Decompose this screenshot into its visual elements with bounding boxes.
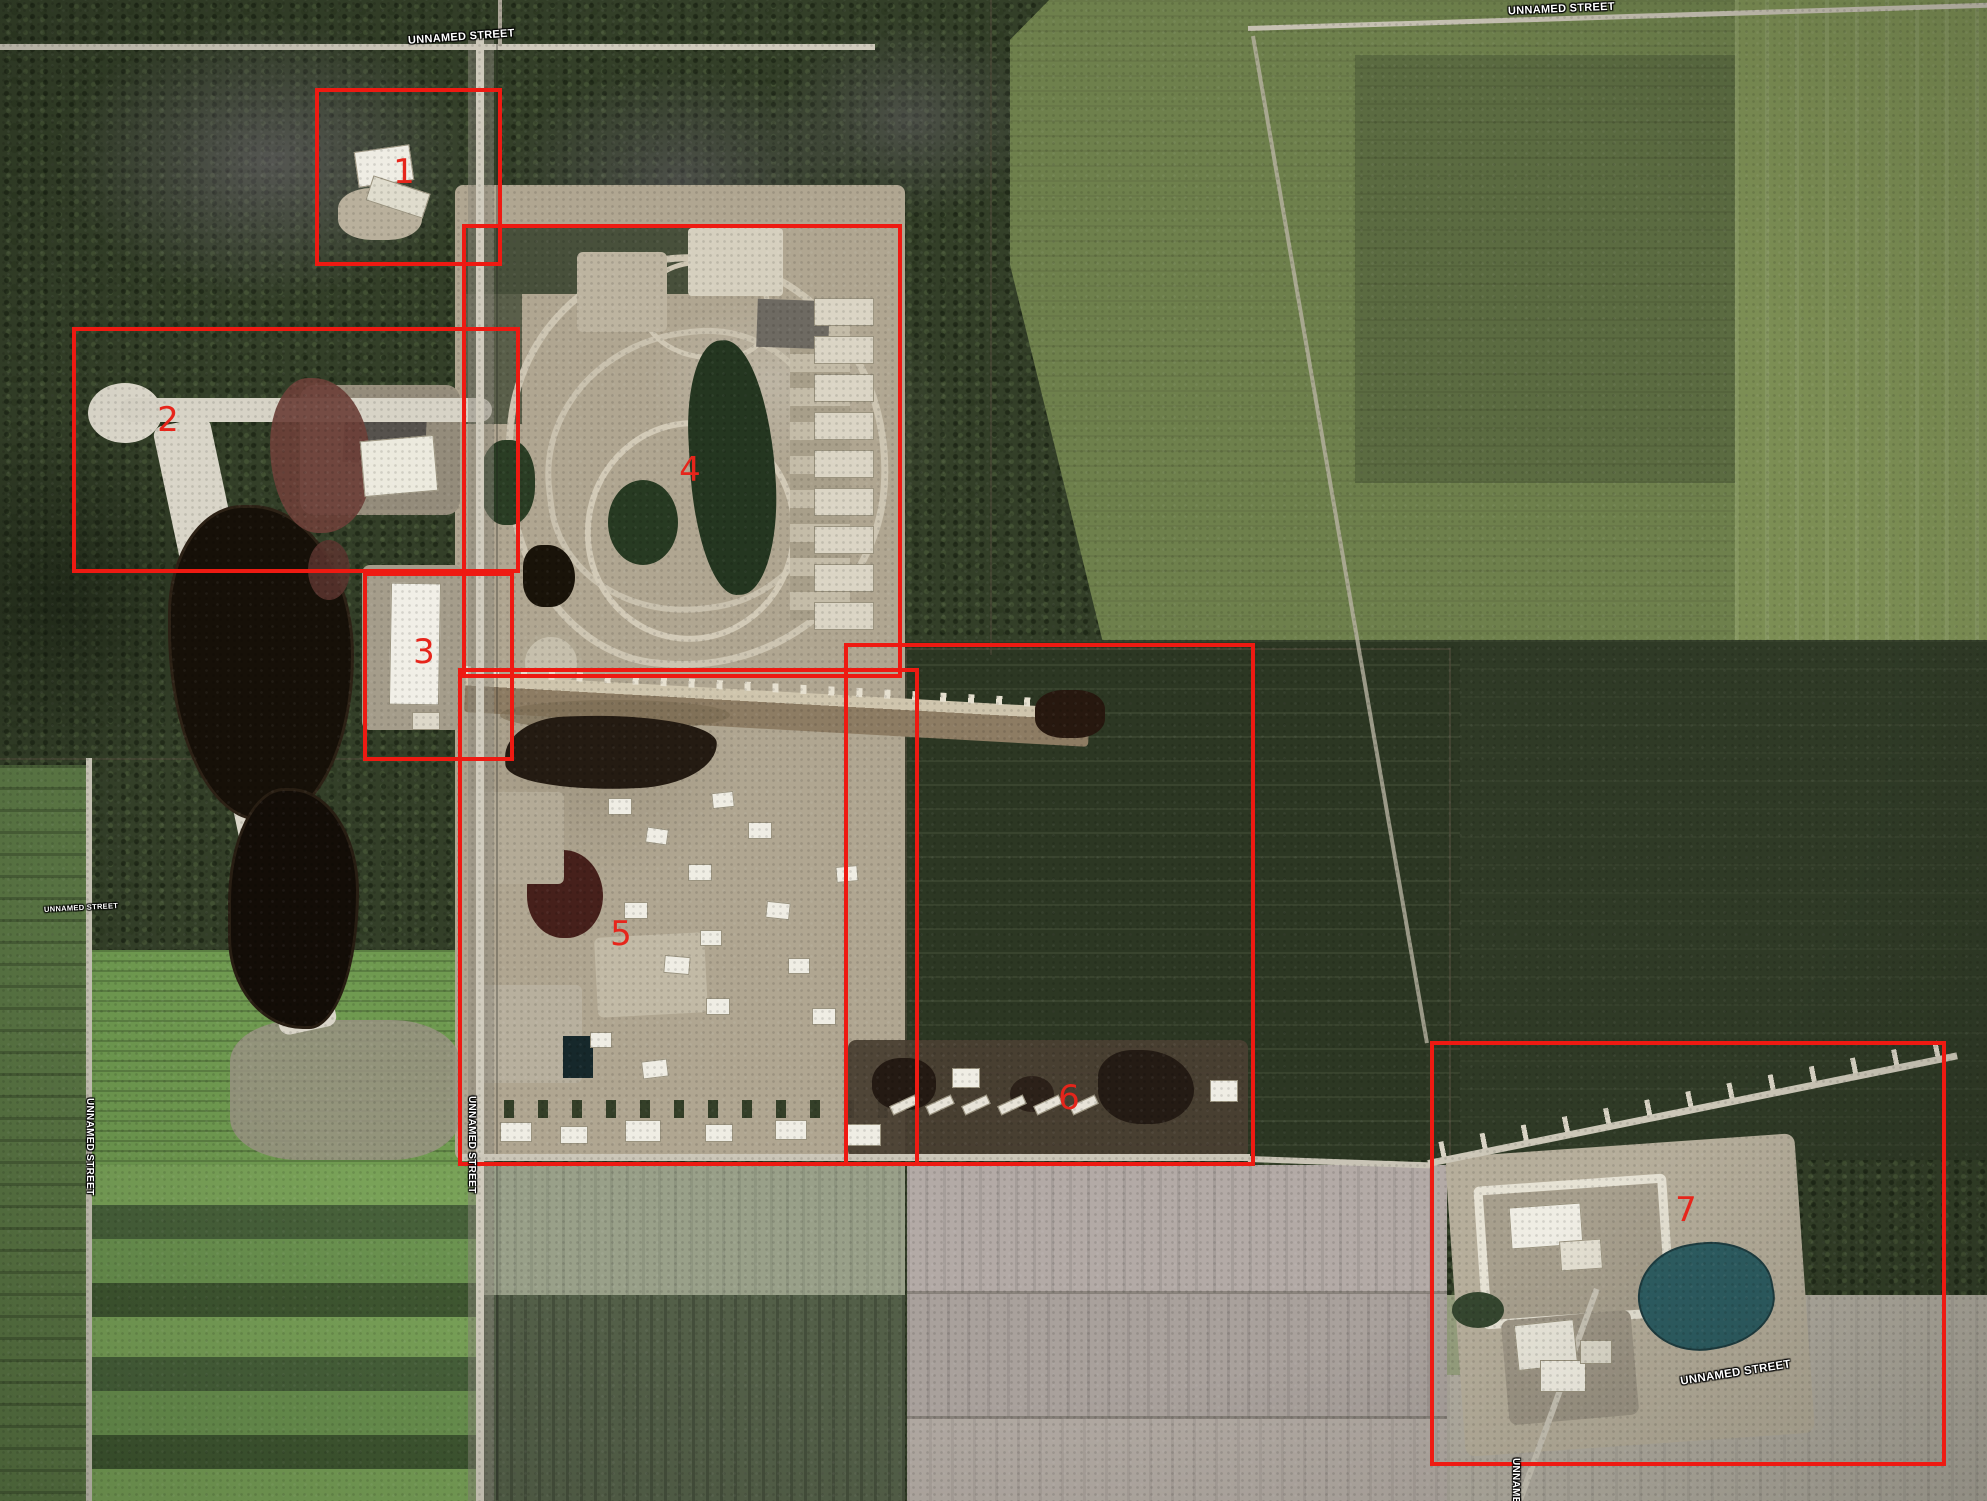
street-label: UNNAMED STREET [1508, 2, 1615, 18]
street-label: UNNAMED STREET [1510, 1458, 1520, 1501]
street-label: UNNAMED STREET [84, 1098, 94, 1196]
street-label: UNNAMED STREET [44, 902, 118, 913]
street-label-layer: UNNAMED STREETUNNAMED STREETUNNAMED STRE… [0, 0, 1987, 1501]
street-label: UNNAMED STREET [408, 28, 515, 46]
satellite-map: 1234567 UNNAMED STREETUNNAMED STREETUNNA… [0, 0, 1987, 1501]
street-label: UNNAMED STREET [466, 1096, 476, 1194]
street-label: UNNAMED STREET [1680, 1359, 1792, 1388]
